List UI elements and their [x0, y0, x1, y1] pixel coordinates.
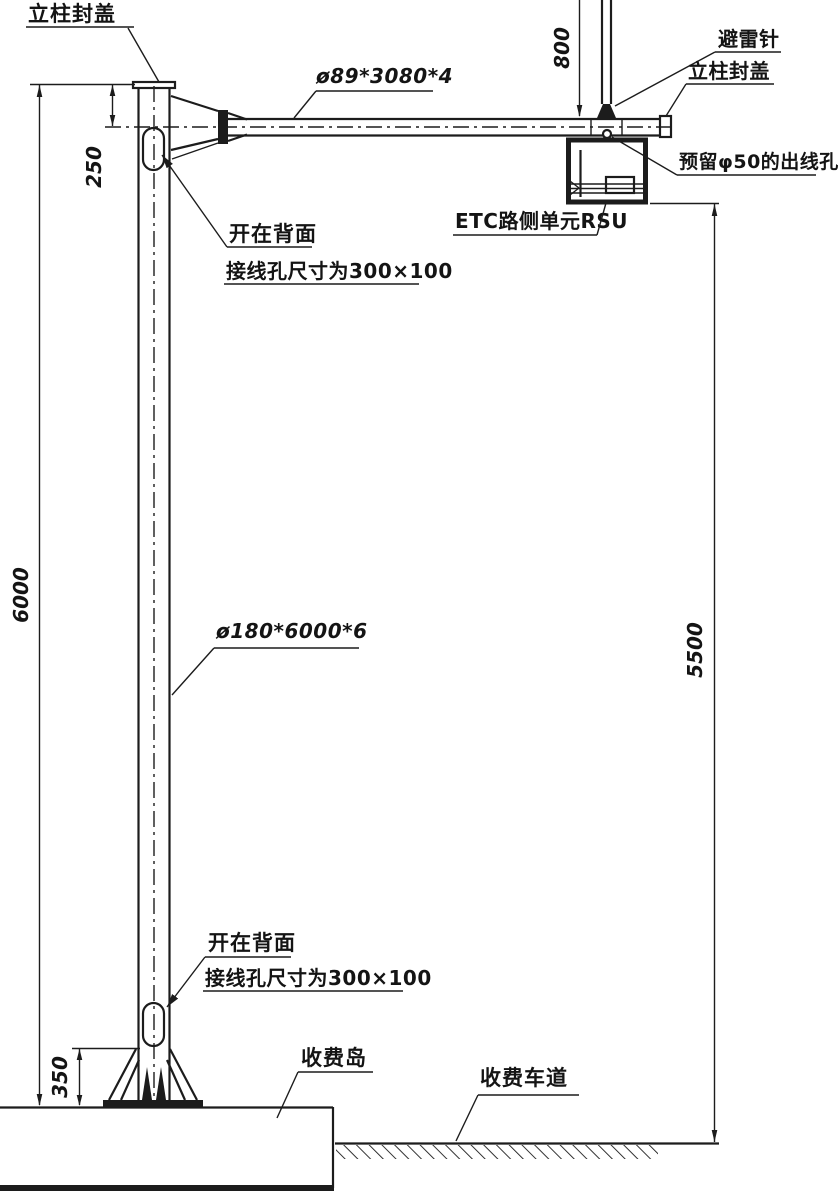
- arrow-down: [77, 1095, 83, 1106]
- callout-toll-lane: 收费车道: [456, 1066, 579, 1141]
- dimension-800: 800: [550, 0, 582, 117]
- lightning-rod: [597, 0, 616, 118]
- leader: [666, 84, 686, 116]
- callout-rsu-unit: ETC路侧单元RSU: [453, 203, 628, 235]
- gusset-lower: [171, 139, 218, 150]
- rsu-device: [606, 177, 634, 193]
- vertical-pole: [133, 82, 175, 1100]
- label-outlet-hole: 预留φ50的出线孔: [679, 150, 838, 173]
- label-toll-lane: 收费车道: [480, 1066, 568, 1090]
- label-hole-note-top-1: 开在背面: [229, 222, 317, 246]
- drawing-page: 6000 250 350 800 5500 立柱封盖 ø89*3080*4: [0, 0, 838, 1196]
- road-hatching: [336, 1145, 658, 1159]
- label-hole-note-bottom-2: 接线孔尺寸为300×100: [205, 966, 432, 990]
- gusset-upper: [171, 96, 218, 111]
- callout-hole-note-bottom: 开在背面 接线孔尺寸为300×100: [167, 931, 432, 1007]
- base-plate: [103, 1100, 203, 1107]
- rod-base-flare: [597, 104, 616, 118]
- label-lightning-rod: 避雷针: [718, 27, 780, 51]
- base-rib-left: [142, 1067, 152, 1100]
- leader: [172, 648, 214, 695]
- label-toll-island: 收费岛: [301, 1046, 367, 1070]
- callout-pole-cap-right: 立柱封盖: [666, 59, 774, 116]
- arrow-down: [712, 1130, 718, 1142]
- leader: [277, 1072, 298, 1118]
- label-hole-note-bottom-1: 开在背面: [208, 931, 296, 955]
- arrow-down: [37, 1094, 43, 1106]
- dim-text-250: 250: [82, 146, 106, 188]
- label-pole-spec: ø180*6000*6: [215, 619, 368, 643]
- arrow-up: [77, 1049, 83, 1060]
- pole-base: [103, 1049, 203, 1107]
- outlet-hole-circle: [603, 130, 611, 138]
- label-arm-spec: ø89*3080*4: [315, 64, 453, 88]
- label-pole-cap-right: 立柱封盖: [688, 59, 770, 83]
- leader: [162, 155, 227, 247]
- dim-text-800: 800: [550, 27, 574, 69]
- leader: [294, 91, 316, 118]
- dimension-6000: 6000: [9, 85, 135, 1107]
- etc-gantry-diagram: 6000 250 350 800 5500 立柱封盖 ø89*3080*4: [0, 0, 838, 1196]
- toll-island: [0, 1107, 334, 1191]
- callout-arm-spec: ø89*3080*4: [294, 64, 453, 118]
- base-gusset-left-inner: [121, 1060, 139, 1100]
- base-rib-right: [156, 1067, 166, 1100]
- callout-hole-note-top: 开在背面 接线孔尺寸为300×100: [162, 155, 453, 284]
- callout-pole-cap-left: 立柱封盖: [26, 2, 159, 82]
- arrow-up: [712, 204, 718, 216]
- leader: [456, 1095, 478, 1141]
- arrow-up: [110, 85, 116, 96]
- dim-text-350: 350: [48, 1056, 72, 1098]
- island-bottom-slab: [0, 1185, 334, 1191]
- arrow-down: [577, 105, 583, 117]
- dim-text-6000: 6000: [9, 567, 33, 623]
- label-rsu-unit: ETC路侧单元RSU: [455, 209, 628, 233]
- label-pole-cap-left: 立柱封盖: [28, 2, 116, 26]
- leader: [167, 957, 205, 1007]
- label-hole-note-top-2: 接线孔尺寸为300×100: [226, 259, 453, 283]
- dimension-5500: 5500: [650, 204, 719, 1143]
- arrow-down: [110, 115, 116, 126]
- callout-pole-spec: ø180*6000*6: [172, 619, 368, 695]
- dimension-250: 250: [82, 85, 115, 188]
- toll-lane-ground: [335, 1144, 719, 1160]
- horizontal-arm: [105, 96, 672, 159]
- arrow-up: [37, 85, 43, 97]
- dim-text-5500: 5500: [683, 622, 707, 678]
- leader: [128, 28, 159, 82]
- dimension-350: 350: [48, 1049, 140, 1107]
- rsu-enclosure: [569, 130, 646, 202]
